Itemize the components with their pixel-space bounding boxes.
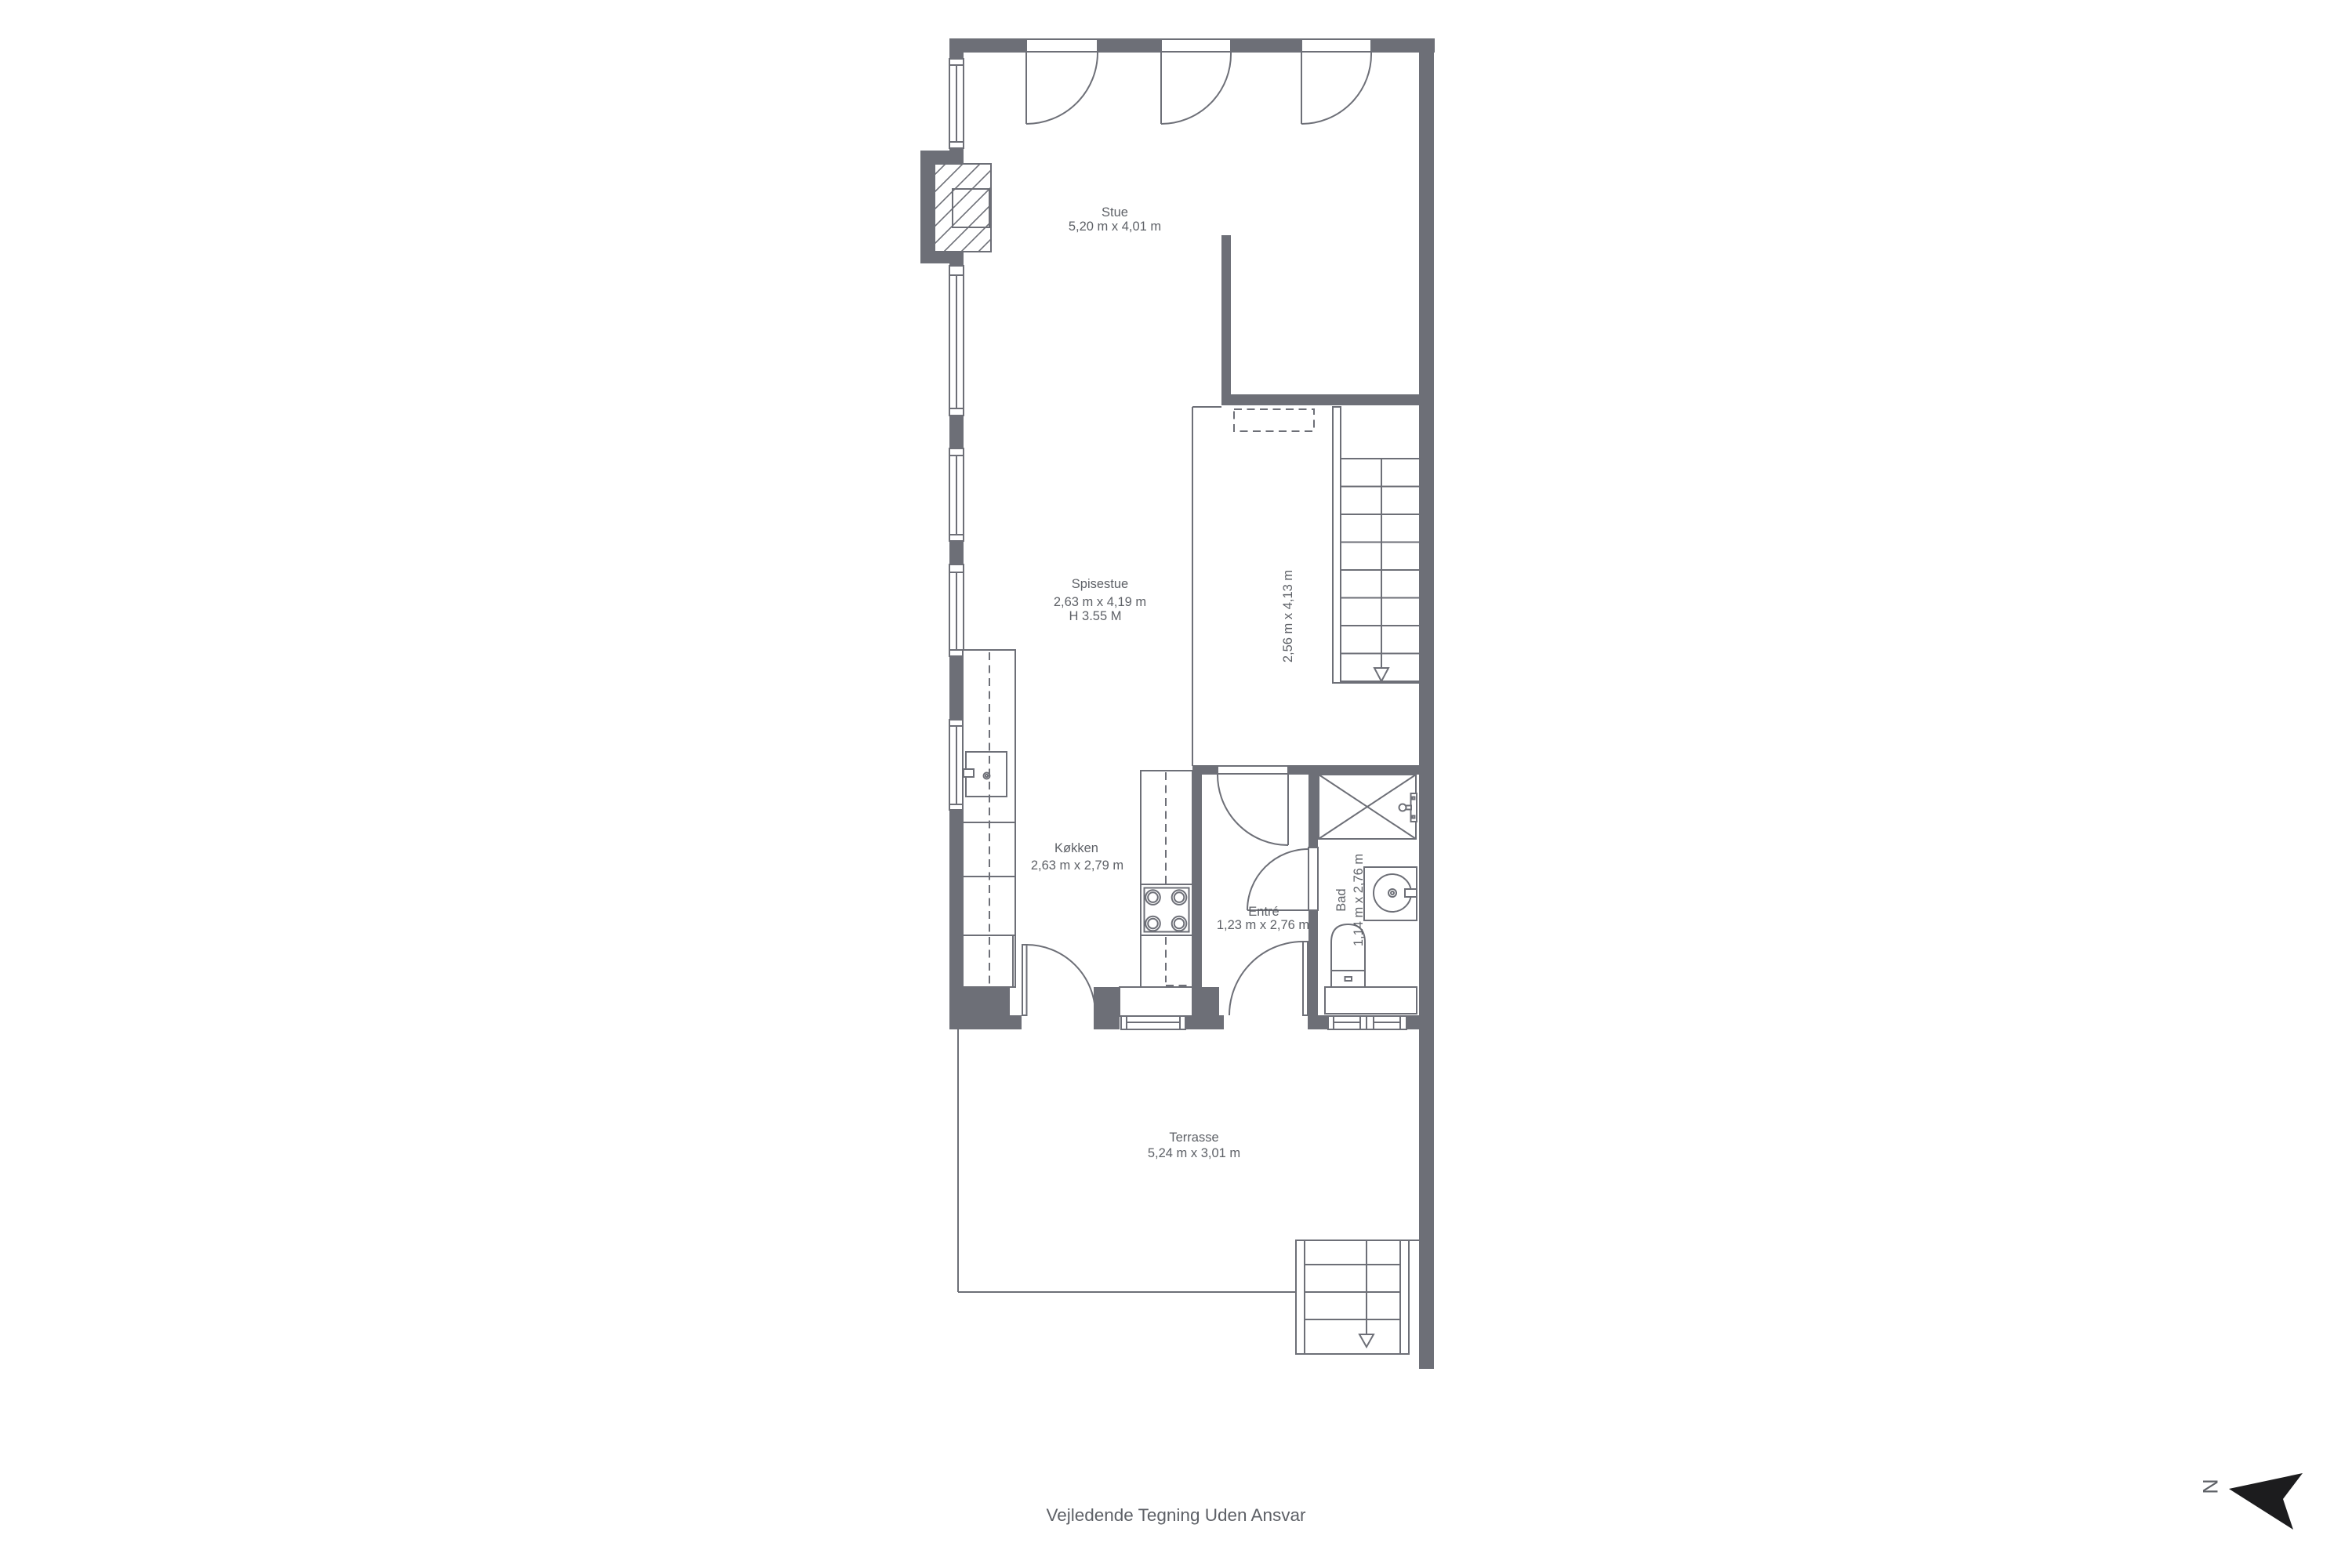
svg-text:Bad: Bad: [1334, 888, 1348, 911]
svg-text:N: N: [2198, 1479, 2222, 1494]
svg-text:2,63 m x 4,19 m: 2,63 m x 4,19 m: [1054, 595, 1146, 609]
svg-text:1,23 m x 2,76 m: 1,23 m x 2,76 m: [1217, 918, 1309, 932]
svg-text:Vejledende Tegning Uden Ansvar: Vejledende Tegning Uden Ansvar: [1046, 1505, 1306, 1525]
svg-text:Køkken: Køkken: [1054, 841, 1098, 855]
svg-text:Entré: Entré: [1248, 905, 1279, 919]
svg-text:5,20 m x 4,01 m: 5,20 m x 4,01 m: [1069, 220, 1161, 234]
svg-text:2,56 m x 4,13 m: 2,56 m x 4,13 m: [1281, 570, 1295, 662]
svg-text:H 3.55 M: H 3.55 M: [1069, 609, 1122, 623]
svg-text:5,24 m x 3,01 m: 5,24 m x 3,01 m: [1148, 1146, 1240, 1160]
svg-text:1,14 m x 2,76 m: 1,14 m x 2,76 m: [1352, 854, 1366, 946]
svg-text:Terrasse: Terrasse: [1169, 1131, 1218, 1145]
svg-text:Stue: Stue: [1102, 205, 1128, 220]
svg-text:2,63 m x 2,79 m: 2,63 m x 2,79 m: [1031, 858, 1123, 873]
svg-text:Spisestue: Spisestue: [1072, 577, 1128, 591]
